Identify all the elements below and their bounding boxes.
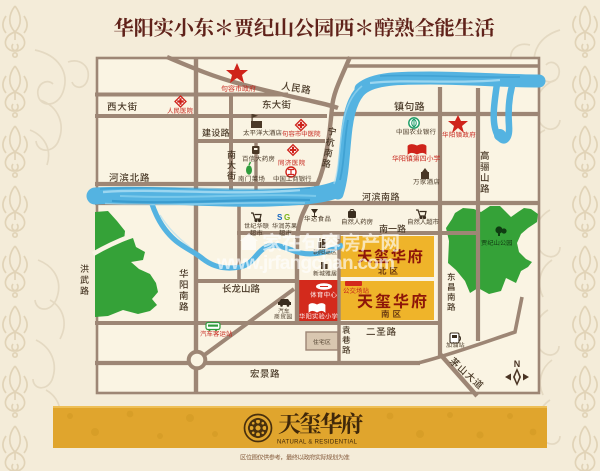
svg-text:N: N: [514, 359, 521, 369]
svg-text:NATURAL & RESIDENTIAL: NATURAL & RESIDENTIAL: [277, 440, 358, 446]
svg-text:G: G: [284, 213, 290, 222]
svg-text:S: S: [277, 213, 283, 222]
svg-text:www.jrfangchan.com: www.jrfangchan.com: [216, 253, 395, 274]
